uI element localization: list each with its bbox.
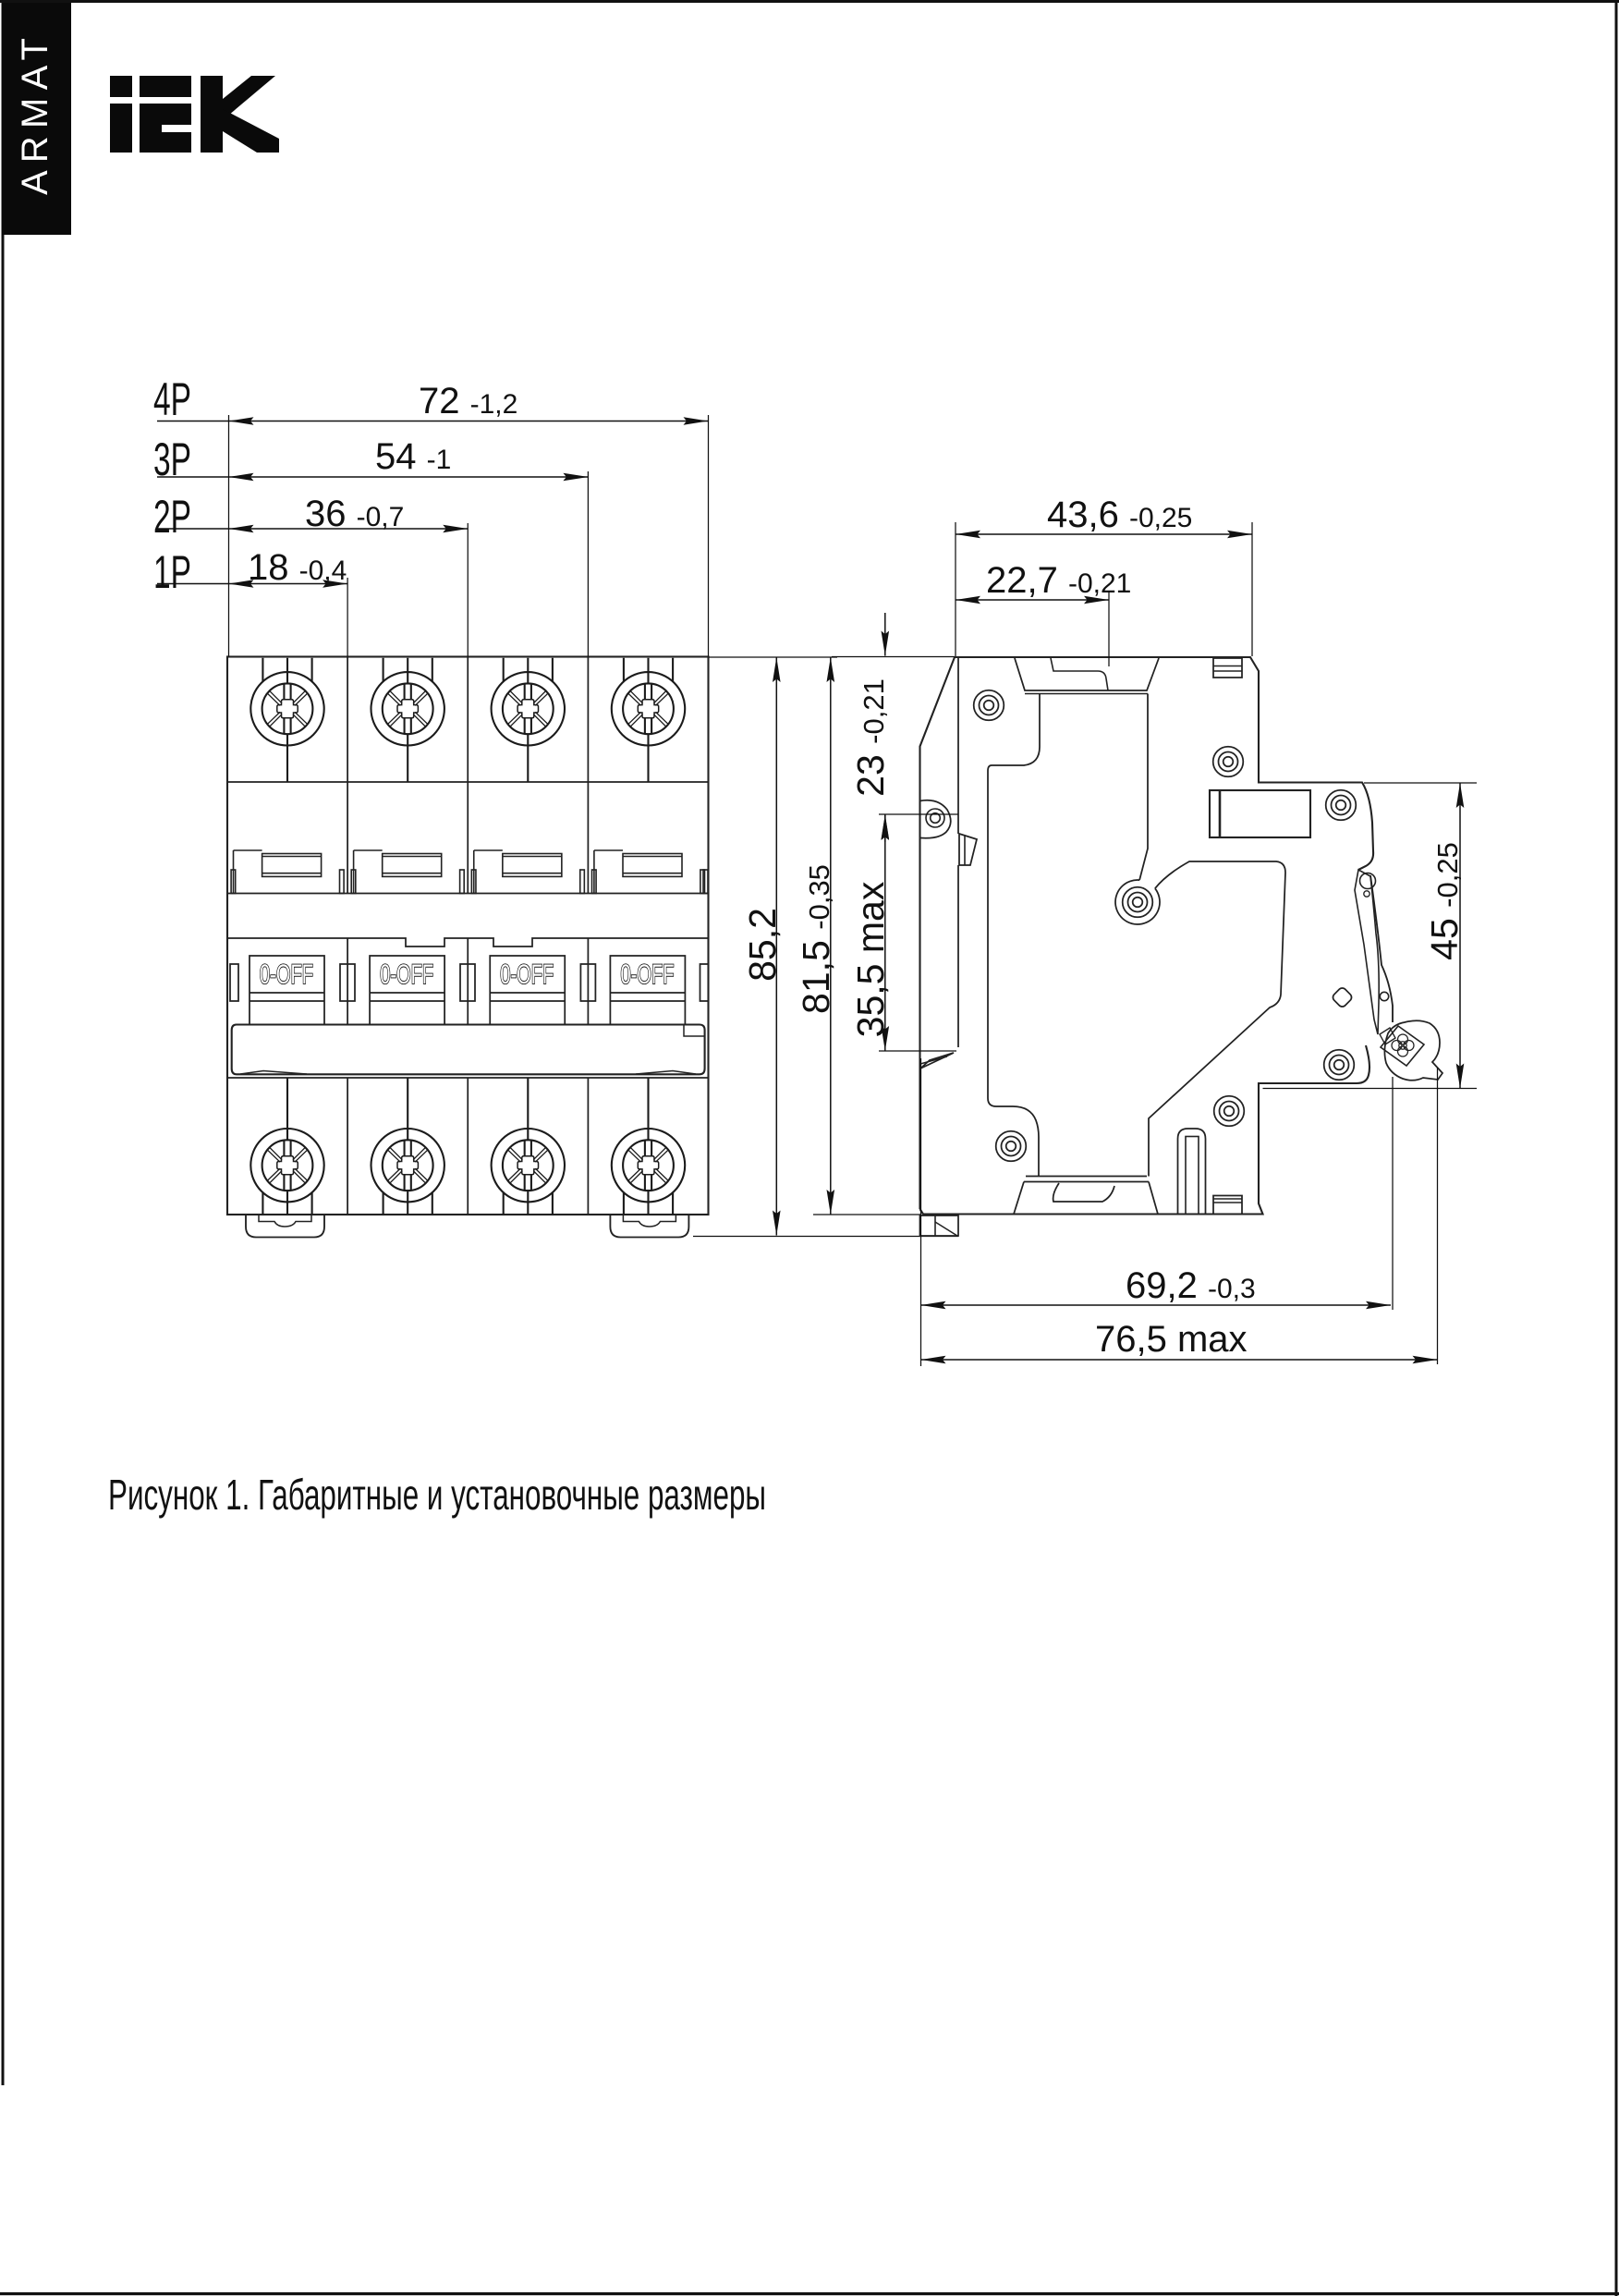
- svg-text:0-OFF: 0-OFF: [621, 959, 675, 990]
- svg-text:35,5 max: 35,5 max: [849, 881, 892, 1037]
- svg-text:0-OFF: 0-OFF: [380, 959, 433, 990]
- svg-text:0-OFF: 0-OFF: [260, 959, 313, 990]
- svg-text:4P: 4P: [153, 373, 191, 425]
- svg-text:76,5 max: 76,5 max: [1095, 1319, 1248, 1360]
- svg-text:0-OFF: 0-OFF: [500, 959, 554, 990]
- svg-text:Рисунок 1. Габаритные и устано: Рисунок 1. Габаритные и установочные раз…: [108, 1471, 766, 1519]
- svg-text:1P: 1P: [153, 546, 191, 598]
- svg-text:85,2: 85,2: [741, 908, 784, 982]
- svg-text:2P: 2P: [153, 491, 191, 543]
